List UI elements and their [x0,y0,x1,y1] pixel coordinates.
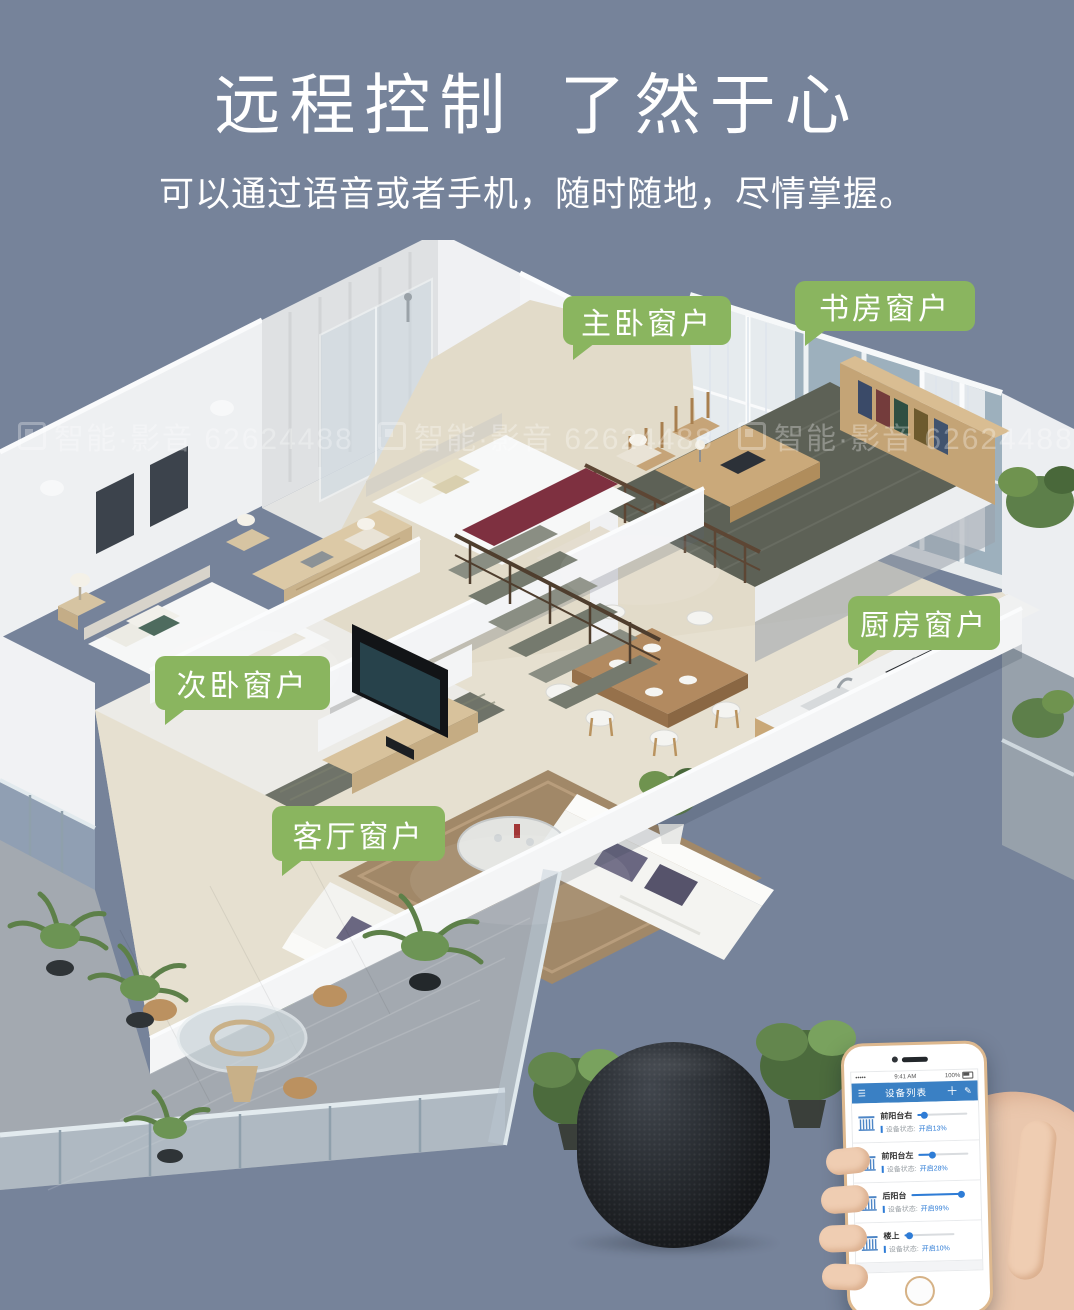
watermark-logo-icon [738,422,766,450]
watermark-logo-icon [18,422,46,450]
callout-label: 书房窗户 [819,284,951,328]
device-slider[interactable] [911,1193,961,1196]
device-name: 楼上 [883,1230,899,1241]
device-status-label: 设备状态: [889,1243,919,1254]
device-status-label: 设备状态: [887,1164,917,1175]
hand-finger [822,1263,869,1291]
battery-icon [962,1071,973,1078]
device-row[interactable]: 楼上 设备状态: 开启10% [855,1220,982,1263]
callout-kitchen-window: 厨房窗户 [848,596,1000,650]
callout-label: 客厅窗户 [293,812,425,856]
device-slider[interactable] [918,1153,968,1156]
callout-master-bedroom-window: 主卧窗户 [563,296,731,345]
signal-icon: ••••• [855,1075,866,1081]
device-row[interactable]: 后阳台 设备状态: 开启99% [854,1180,981,1223]
page: 远程控制 了然于心 可以通过语音或者手机，随时随地，尽情掌握。 [0,0,1074,1310]
callout-study-window: 书房窗户 [795,281,975,331]
screen-filler [856,1260,982,1272]
watermark-text: 智能·影音 62624488 [414,414,714,458]
hand-finger [819,1224,868,1253]
watermark-logo-icon [378,422,406,450]
device-status-label: 设备状态: [888,1203,918,1214]
add-device-button[interactable]: ＋ [946,1085,958,1097]
watermark-text: 智能·影音 62624488 [54,414,354,458]
status-battery: 100% [945,1071,974,1079]
callout-second-bedroom-window: 次卧窗户 [155,656,330,710]
status-bar-icon [881,1126,883,1133]
phone-earpiece [902,1057,928,1063]
device-name: 后阳台 [882,1190,906,1202]
home-button[interactable] [905,1276,936,1307]
device-status-value: 开启10% [922,1243,950,1254]
device-name: 前阳台右 [880,1110,912,1122]
hand-finger [820,1184,870,1214]
device-slider[interactable] [917,1113,967,1116]
status-bar-icon [882,1166,884,1173]
watermark: 智能·影音 62624488 [738,414,1074,458]
menu-icon[interactable]: ☰ [858,1088,866,1099]
phone-camera [892,1056,898,1062]
device-row[interactable]: 前阳台右 设备状态: 开启13% [852,1100,979,1143]
callout-living-room-window: 客厅窗户 [272,806,445,861]
callout-label: 次卧窗户 [177,661,309,705]
device-status-label: 设备状态: [886,1124,916,1135]
device-status-value: 开启99% [921,1203,949,1214]
device-row[interactable]: 前阳台左 设备状态: 开启28% [853,1140,980,1183]
watermark: 智能·影音 62624488 [378,414,714,458]
device-name: 前阳台左 [881,1150,913,1162]
callout-label: 主卧窗户 [581,299,713,343]
watermark: 智能·影音 62624488 [18,414,354,458]
page-title: 远程控制 了然于心 [0,52,1074,148]
watermark-text: 智能·影音 62624488 [774,414,1074,458]
status-bar-icon [884,1246,886,1253]
callout-label: 厨房窗户 [860,602,988,644]
device-status-value: 开启13% [918,1123,946,1134]
page-subtitle: 可以通过语音或者手机，随时随地，尽情掌握。 [0,166,1074,217]
smart-speaker [577,1042,770,1248]
app-title: 设备列表 [872,1084,941,1100]
phone-screen: ••••• 9:41 AM 100% ☰ 设备列表 ＋ ✎ [850,1068,983,1273]
status-bar-icon [883,1206,885,1213]
curtain-icon [857,1114,875,1132]
hand-with-phone: ••••• 9:41 AM 100% ☰ 设备列表 ＋ ✎ [818,1036,1074,1310]
device-status-value: 开启28% [920,1163,948,1174]
device-slider[interactable] [904,1233,954,1236]
status-time: 9:41 AM [894,1073,916,1080]
edit-button[interactable]: ✎ [964,1085,972,1096]
